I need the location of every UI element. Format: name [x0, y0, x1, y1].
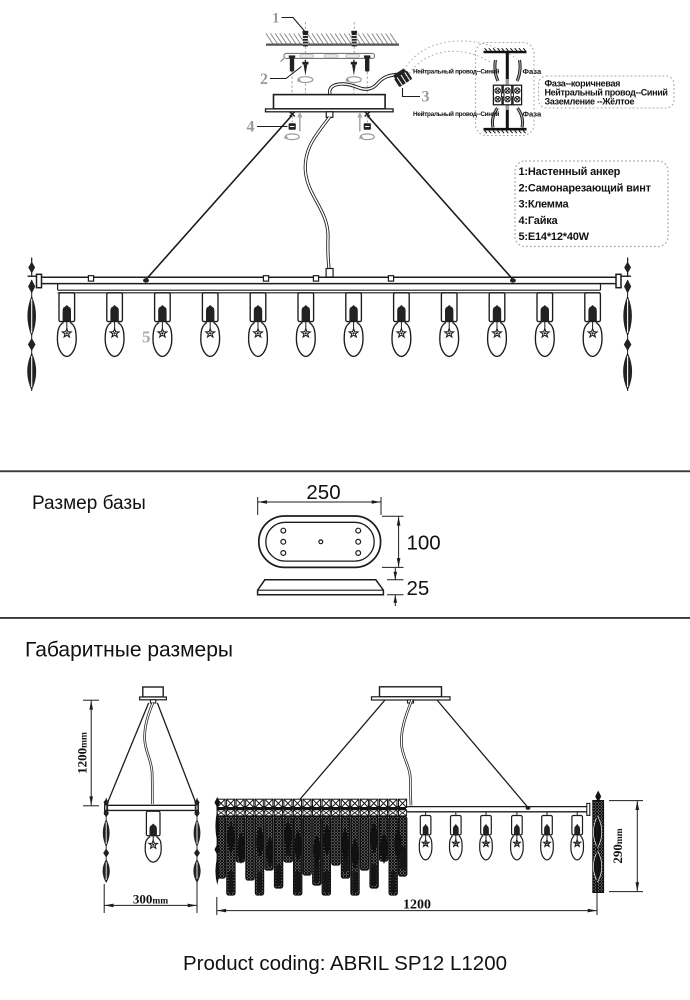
- svg-text:Нейтральный провод--Синий: Нейтральный провод--Синий: [413, 110, 499, 118]
- svg-text:Размер базы: Размер базы: [32, 493, 146, 514]
- svg-text:Нейтральный провод--Синий: Нейтральный провод--Синий: [413, 68, 499, 76]
- svg-text:4: 4: [247, 119, 255, 136]
- svg-text:Заземление --Жёлтое: Заземление --Жёлтое: [545, 97, 635, 107]
- svg-text:1200mm: 1200mm: [75, 732, 90, 774]
- svg-text:250: 250: [306, 481, 340, 504]
- svg-text:Product coding: ABRIL SP12 L12: Product coding: ABRIL SP12 L1200: [183, 952, 507, 975]
- svg-text:3: 3: [422, 89, 430, 106]
- svg-text:Габаритные размеры: Габаритные размеры: [25, 639, 233, 662]
- svg-text:5: 5: [142, 328, 151, 347]
- svg-text:1: 1: [272, 11, 280, 27]
- svg-text:2:Самонарезающий винт: 2:Самонарезающий винт: [519, 182, 652, 194]
- svg-text:Фаза: Фаза: [523, 109, 542, 118]
- svg-text:1200: 1200: [403, 898, 431, 913]
- svg-text:2: 2: [260, 71, 268, 88]
- svg-text:100: 100: [407, 532, 441, 555]
- svg-text:25: 25: [407, 577, 430, 600]
- svg-text:5:E14*12*40W: 5:E14*12*40W: [519, 231, 590, 243]
- svg-text:290mm: 290mm: [610, 828, 625, 863]
- svg-text:1:Настенный анкер: 1:Настенный анкер: [519, 166, 621, 178]
- svg-text:4:Гайка: 4:Гайка: [519, 215, 559, 227]
- svg-text:3:Клемма: 3:Клемма: [519, 199, 570, 211]
- svg-text:Фаза: Фаза: [523, 67, 542, 76]
